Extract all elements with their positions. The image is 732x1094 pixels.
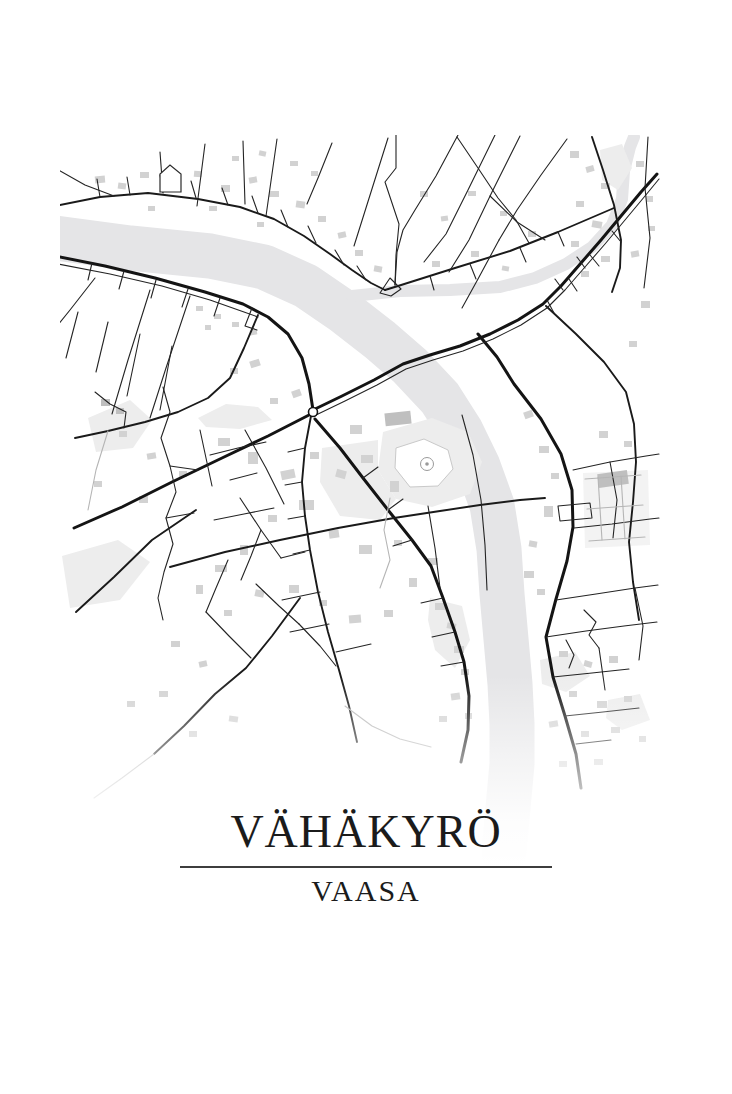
- poster-subtitle: VAASA: [0, 874, 732, 907]
- map-canvas: [60, 135, 660, 870]
- poster-caption: VÄHÄKYRÖ VAASA: [0, 806, 732, 907]
- title-divider: [180, 866, 552, 868]
- map-poster: VÄHÄKYRÖ VAASA: [0, 0, 732, 1094]
- map-area: [60, 135, 660, 870]
- poster-title: VÄHÄKYRÖ: [0, 806, 732, 859]
